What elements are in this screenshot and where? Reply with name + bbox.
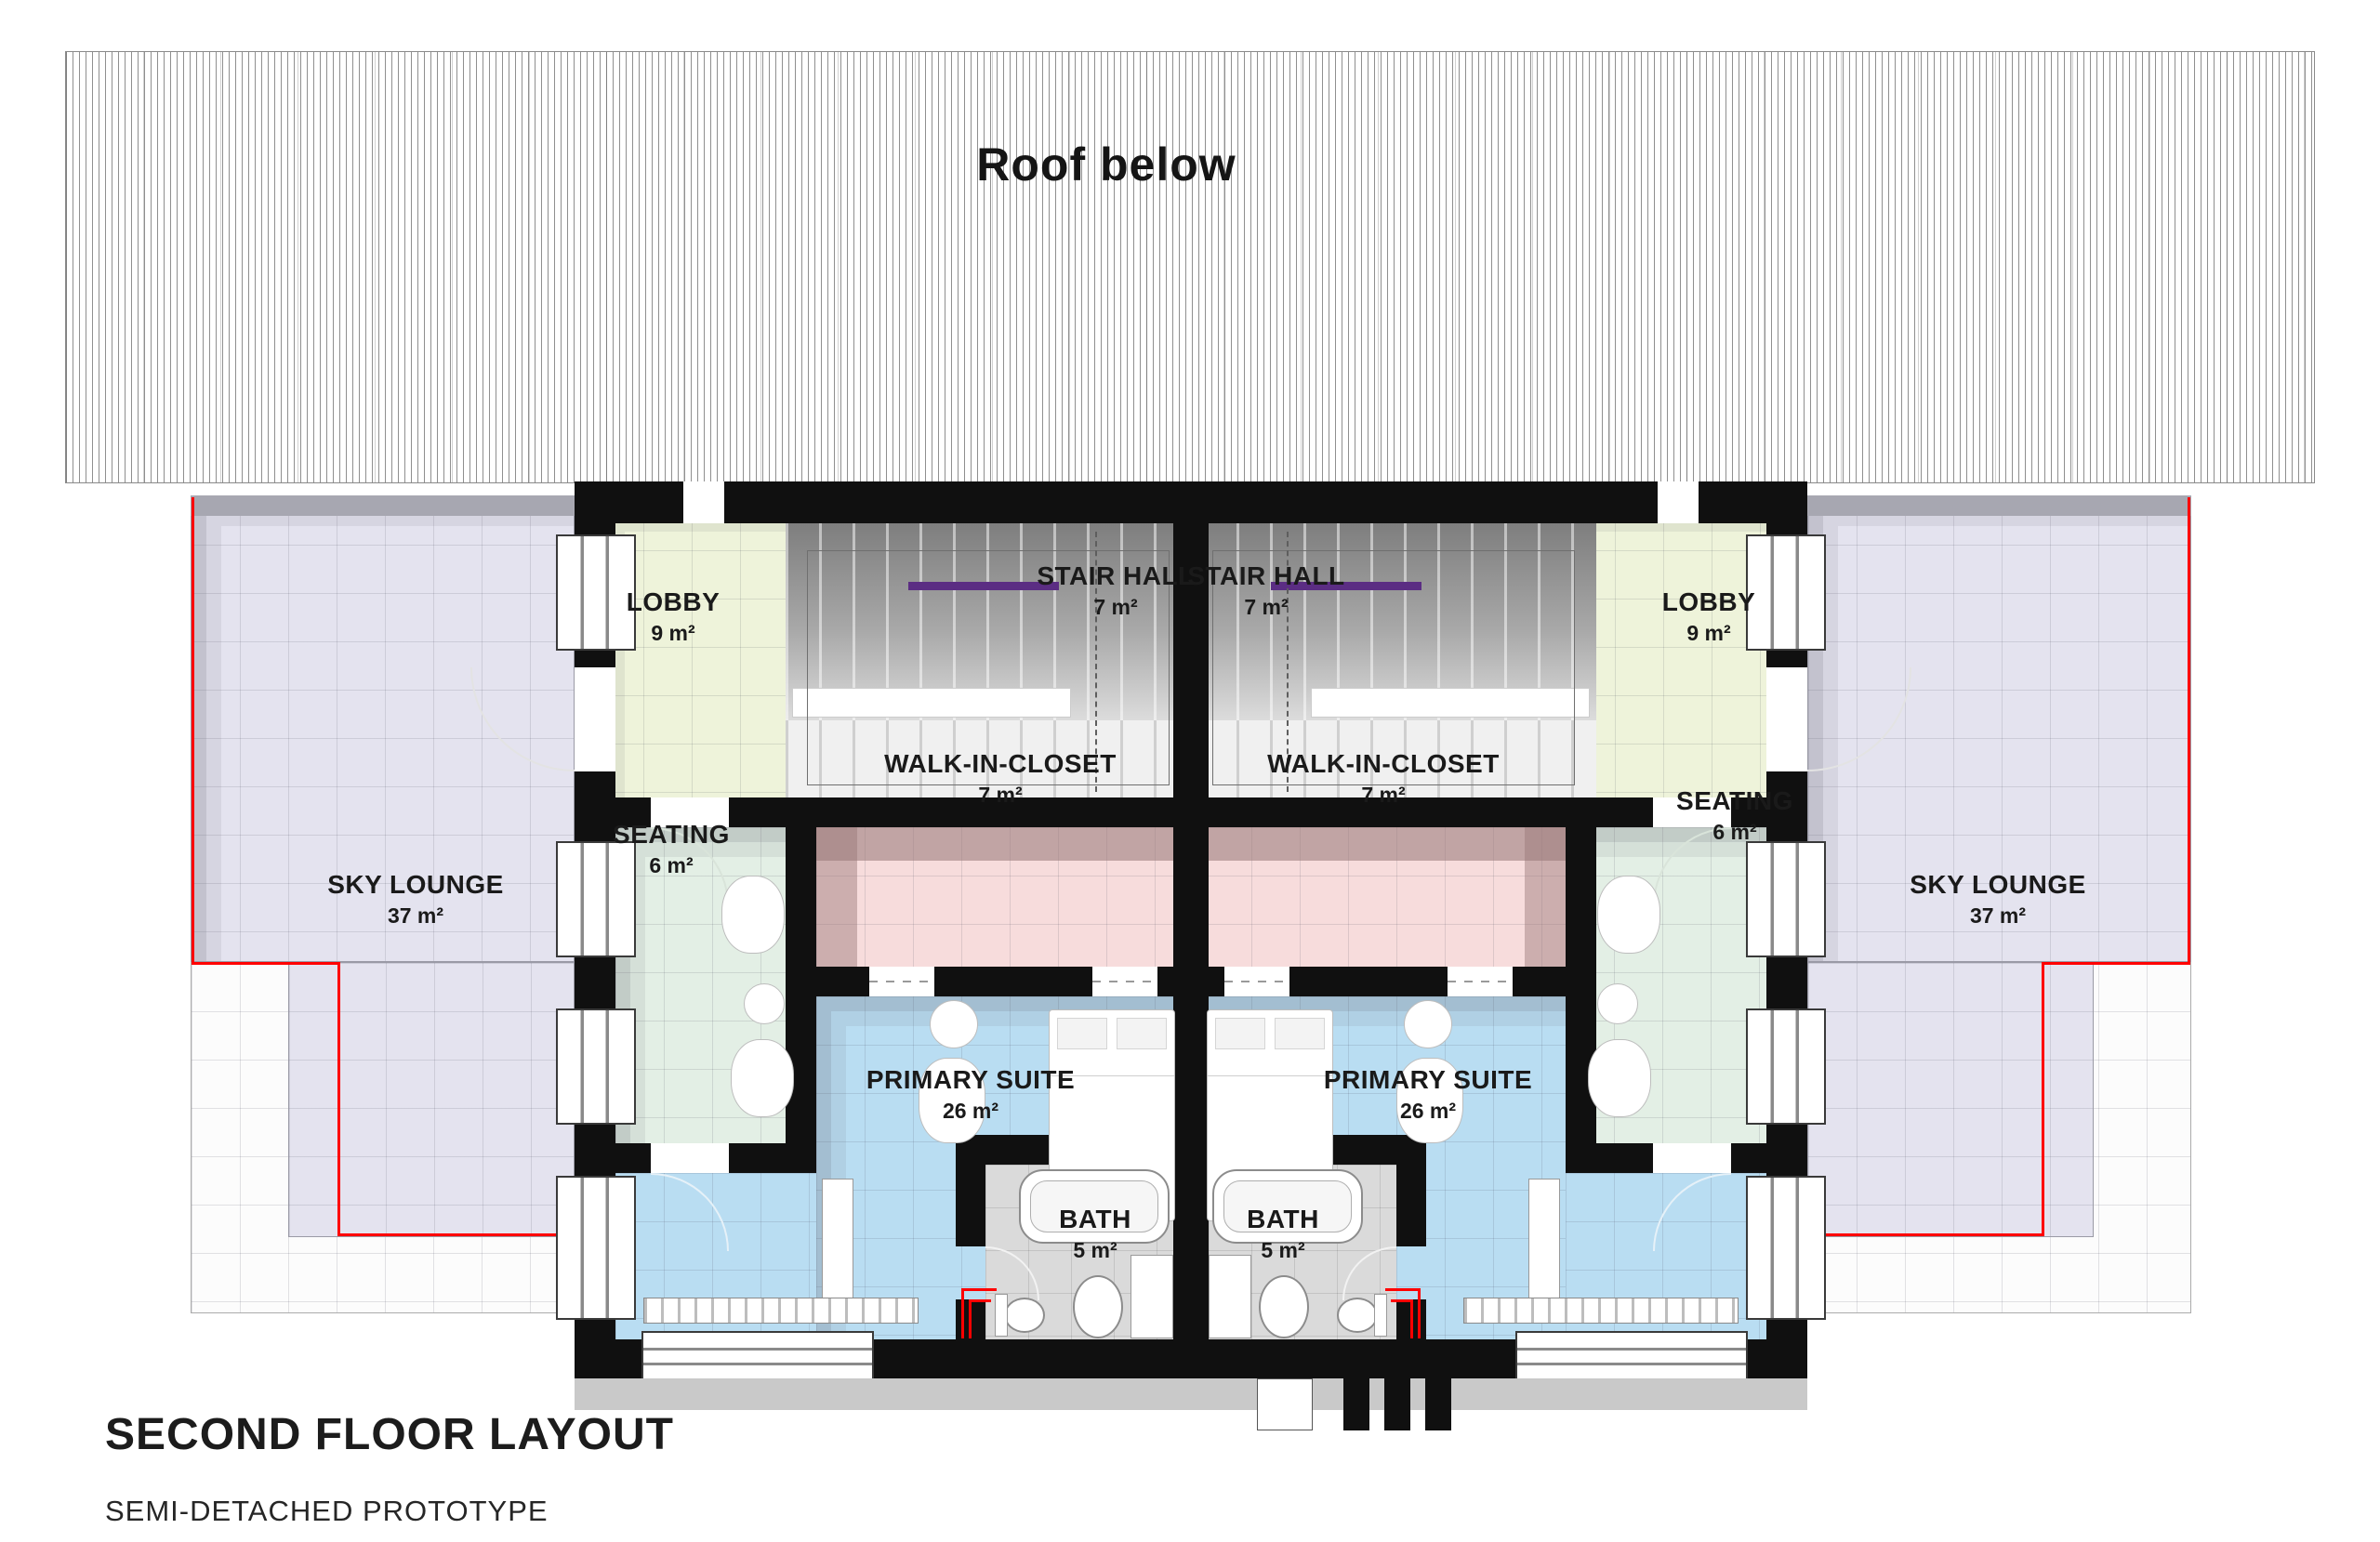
ottoman-right (1404, 1000, 1452, 1048)
label-seating-right-area: 6 m² (1642, 820, 1828, 845)
vanity-left (1130, 1255, 1173, 1338)
label-bath-right: BATH (1190, 1205, 1376, 1234)
label-seating-right: SEATING (1642, 786, 1828, 816)
roof-eave-shadow-left (191, 495, 575, 516)
door-gap-wic-right-b (1448, 967, 1513, 996)
boundary-red-left-step-v (337, 962, 340, 1236)
sky-lounge-left-lower (288, 962, 575, 1237)
vanity-right (1209, 1255, 1251, 1338)
wall-seating-divider-right (1566, 827, 1596, 1173)
boundary-red-left-step-h (192, 962, 340, 965)
bottom-porch-slab (1257, 1378, 1313, 1430)
armchair-seating-left-2 (731, 1039, 794, 1117)
label-sky-left: SKY LOUNGE (304, 870, 527, 900)
label-suite-right-area: 26 m² (1289, 1099, 1567, 1124)
roof-hatch-area (65, 51, 2315, 483)
label-lobby-left: LOBBY (580, 587, 766, 617)
door-gap-wic-right-a (1224, 967, 1289, 996)
side-table-seating-left (744, 983, 785, 1024)
ottoman-left (930, 1000, 978, 1048)
wall-bath-side-left-a (956, 1165, 985, 1246)
bottom-stub-1 (1343, 1378, 1369, 1430)
vent-gap-top-wall-left (683, 481, 724, 523)
bottom-apron-strip (575, 1378, 1807, 1410)
armchair-seating-right-1 (1597, 876, 1660, 954)
door-gap-terrace-left (575, 667, 615, 771)
label-bath-left-area: 5 m² (1002, 1238, 1188, 1263)
label-sky-right-area: 37 m² (1886, 903, 2109, 929)
window-right-suite-upper (1746, 1008, 1826, 1125)
drawing-subtitle: SEMI-DETACHED PROTOTYPE (105, 1495, 549, 1528)
roof-label: Roof below (892, 138, 1320, 191)
pipe-symbol-left-inner (969, 1299, 991, 1338)
roof-eave-shadow-right (1807, 495, 2191, 516)
door-gap-seating-suite-right (1653, 1143, 1731, 1173)
label-seating-left: SEATING (578, 820, 764, 850)
label-sky-right: SKY LOUNGE (1886, 870, 2109, 900)
vent-gap-top-wall-right (1658, 481, 1699, 523)
window-right-suite-lower (1746, 1176, 1826, 1320)
window-left-suite-lower (556, 1176, 636, 1320)
drawing-title: SECOND FLOOR LAYOUT (105, 1409, 674, 1460)
label-sky-left-area: 37 m² (304, 903, 527, 929)
label-wic-right: WALK-IN-CLOSET (1244, 749, 1523, 779)
toilet-tank-left (995, 1294, 1008, 1337)
boundary-red-right-step-v (2042, 962, 2044, 1236)
wic-left-shadow-side (816, 827, 857, 967)
label-wic-right-area: 7 m² (1244, 783, 1523, 808)
label-suite-right: PRIMARY SUITE (1289, 1065, 1567, 1095)
window-left-suite-upper (556, 1008, 636, 1125)
pillow (1117, 1018, 1167, 1049)
boundary-red-right-vertical (2188, 497, 2190, 964)
window-bench-right (1463, 1298, 1739, 1324)
label-lobby-left-area: 9 m² (580, 621, 766, 646)
floor-plan-canvas: Roof below (0, 0, 2380, 1542)
label-lobby-right: LOBBY (1616, 587, 1802, 617)
window-bench-left (643, 1298, 919, 1324)
window-right-seating (1746, 841, 1826, 957)
boundary-red-right-step-h (2042, 962, 2190, 965)
label-stair-right-area: 7 m² (1164, 595, 1368, 620)
wic-right-shadow-side (1525, 827, 1566, 967)
pipe-symbol-right-inner (1391, 1299, 1413, 1338)
label-bath-left: BATH (1002, 1205, 1188, 1234)
armchair-seating-right-2 (1588, 1039, 1651, 1117)
wic-left-shadow-top (816, 827, 1179, 861)
toilet-left (1004, 1298, 1045, 1333)
door-gap-terrace-right (1766, 667, 1807, 771)
pillow (1057, 1018, 1107, 1049)
sky-lounge-right-lower (1807, 962, 2094, 1237)
window-bottom-suite-right (1515, 1331, 1748, 1381)
label-bath-right-area: 5 m² (1190, 1238, 1376, 1263)
pillow (1215, 1018, 1265, 1049)
label-seating-left-area: 6 m² (578, 853, 764, 878)
label-suite-left: PRIMARY SUITE (831, 1065, 1110, 1095)
label-suite-left-area: 26 m² (831, 1099, 1110, 1124)
label-stair-right: STAIR HALL (1164, 561, 1368, 591)
wic-right-shadow-top (1203, 827, 1566, 861)
label-wic-left-area: 7 m² (861, 783, 1140, 808)
armchair-seating-left-1 (721, 876, 785, 954)
sink-right (1259, 1275, 1309, 1338)
side-table-seating-right (1597, 983, 1638, 1024)
bottom-stub-2 (1384, 1378, 1410, 1430)
label-wic-left: WALK-IN-CLOSET (861, 749, 1140, 779)
pillow (1275, 1018, 1325, 1049)
door-gap-wic-left-b (1092, 967, 1157, 996)
window-bottom-suite-left (641, 1331, 874, 1381)
wall-seating-divider-left (786, 827, 816, 1173)
sink-left (1073, 1275, 1123, 1338)
boundary-red-left-vertical (192, 497, 194, 964)
label-lobby-right-area: 9 m² (1616, 621, 1802, 646)
door-gap-wic-left-a (869, 967, 934, 996)
door-gap-seating-suite-left (651, 1143, 729, 1173)
wall-bath-side-right-a (1396, 1165, 1426, 1246)
toilet-right (1337, 1298, 1378, 1333)
bottom-stub-3 (1425, 1378, 1451, 1430)
